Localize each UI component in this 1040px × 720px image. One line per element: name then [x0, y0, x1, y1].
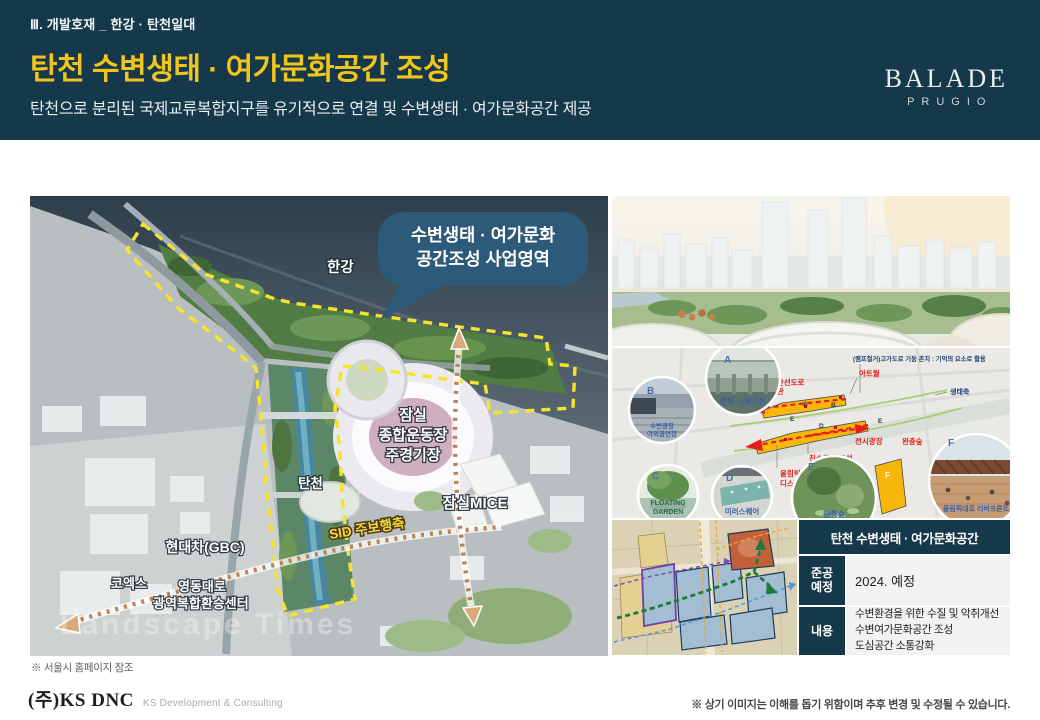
table-label-details-line1: 내용 [811, 624, 833, 638]
stadium-label-3: 주경기장 [385, 446, 440, 464]
art-wall-label: 아트월 [859, 368, 880, 378]
plan-letter-a: A [803, 401, 808, 408]
tancheon-label: 탄천 [298, 475, 323, 491]
han-river-label: 한강 [327, 258, 354, 276]
table-value-completion: 2024. 예정 [847, 556, 1010, 605]
presentation-slide: Ⅲ. 개발호재 _ 한강 · 탄천일대 탄천 수변생태 · 여가문화공간 조성 … [0, 0, 1040, 720]
main-map-image: 수변생태 · 여가문화 공간조성 사업영역 Landscape Times 한강… [30, 196, 608, 656]
render-bridge [612, 288, 1010, 292]
table-label-completion: 준공 예정 [799, 556, 845, 605]
feature-diagram-image: (램프철거)고가도로 기둥 존치 : 기억의 요소로 활용 아트월 동부간선도로… [612, 348, 1010, 518]
callout-c-label-2: GARDEN [653, 509, 683, 516]
diagram-top-note: (램프철거)고가도로 기둥 존치 : 기억의 요소로 활용 [853, 354, 986, 363]
callout-a-label: 블루 시워가든 [720, 396, 767, 406]
content-area: 수변생태 · 여가문화 공간조성 사업영역 Landscape Times 한강… [0, 140, 1040, 720]
header: Ⅲ. 개발호재 _ 한강 · 탄천일대 탄천 수변생태 · 여가문화공간 조성 … [0, 0, 1040, 140]
table-label-details: 내용 [799, 607, 845, 656]
callout-a-letter: A [724, 355, 731, 366]
table-detail-line: 수변여가문화공간 조성 [855, 623, 1010, 639]
exhibition-plaza-label: 전시광장 [855, 436, 883, 446]
info-table-title: 탄천 수변생태 · 여가문화공간 [799, 520, 1010, 554]
stadium-label-1: 잠실 [399, 406, 427, 424]
buffer-forest-label: 완충숲 [902, 436, 923, 446]
callout-f-label: 올림픽대로 리버프론트 [943, 504, 1010, 513]
callout-c-letter: C [652, 471, 659, 482]
bubble-line1: 수변생태 · 여가문화 [411, 225, 555, 245]
section-kicker: Ⅲ. 개발호재 _ 한강 · 탄천일대 [30, 14, 1040, 33]
plan-letter-e1: E [790, 416, 795, 423]
callout-d-letter: D [726, 473, 733, 484]
company-subtitle: KS Development & Consulting [143, 698, 283, 709]
eco-axis-label: 생태축 [950, 387, 970, 396]
table-row-completion: 준공 예정 2024. 예정 [799, 556, 1010, 605]
table-label-completion-line2: 예정 [811, 580, 833, 594]
callout-e-letter: E [808, 462, 815, 473]
plan-letter-e2: E [878, 418, 883, 425]
mice-label: 잠실MICE [442, 494, 507, 512]
company-name: (주)KS DNC [28, 685, 134, 712]
plan-letter-d: D [819, 423, 824, 430]
callout-c-label-1: FLOATING [650, 500, 686, 507]
callout-e-label: 완충숲 [823, 509, 846, 518]
callout-b-label-1: 수변광장 [650, 421, 674, 430]
company-footer: (주)KS DNC KS Development & Consulting [28, 685, 283, 712]
table-row-details: 내용 수변환경을 위한 수질 및 악취개선 수변여가문화공간 조성 도심공간 소… [799, 607, 1010, 656]
disclaimer: ※ 상기 이미지는 이해를 돕기 위함이며 추후 변경 및 수정될 수 있습니다… [691, 696, 1010, 712]
table-label-completion-line1: 준공 [811, 566, 833, 580]
park-render-image [612, 196, 1010, 346]
callout-b-letter: B [647, 386, 654, 397]
brand-subname: PRUGIO [885, 96, 1008, 108]
stadium-label-2: 종합운동장 [378, 426, 447, 444]
gbc-label: 현대차(GBC) [165, 539, 244, 555]
source-note: ※ 서울시 홈페이지 참조 [31, 660, 133, 675]
watermark: Landscape Times [60, 608, 356, 641]
yeongdong-label-1: 영동대로 [178, 579, 226, 594]
brand-logo: BALADE PRUGIO [885, 64, 1008, 108]
coex-label: 코엑스 [111, 576, 147, 591]
table-detail-line: 수변환경을 위한 수질 및 악취개선 [855, 607, 1010, 623]
info-table: 탄천 수변생태 · 여가문화공간 준공 예정 2024. 예정 내용 수변환경을… [799, 520, 1010, 655]
callout-b-label-2: 야외공연장 [647, 429, 677, 438]
callout-f-letter: F [948, 438, 954, 449]
zoning-map-image [612, 520, 797, 655]
brand-name: BALADE [885, 64, 1008, 94]
yeongdong-label-2: 광역복합환승센터 [153, 596, 249, 611]
table-detail-line: 도심공간 소통강화 [855, 639, 1010, 655]
plan-letter-f: F [885, 471, 890, 480]
bubble-line2: 공간조성 사업영역 [416, 249, 550, 269]
plan-letter-b: B [831, 402, 836, 409]
table-value-details: 수변환경을 위한 수질 및 악취개선 수변여가문화공간 조성 도심공간 소통강화 [847, 607, 1010, 656]
callout-d-label: 미러스퀘어 [725, 506, 760, 516]
